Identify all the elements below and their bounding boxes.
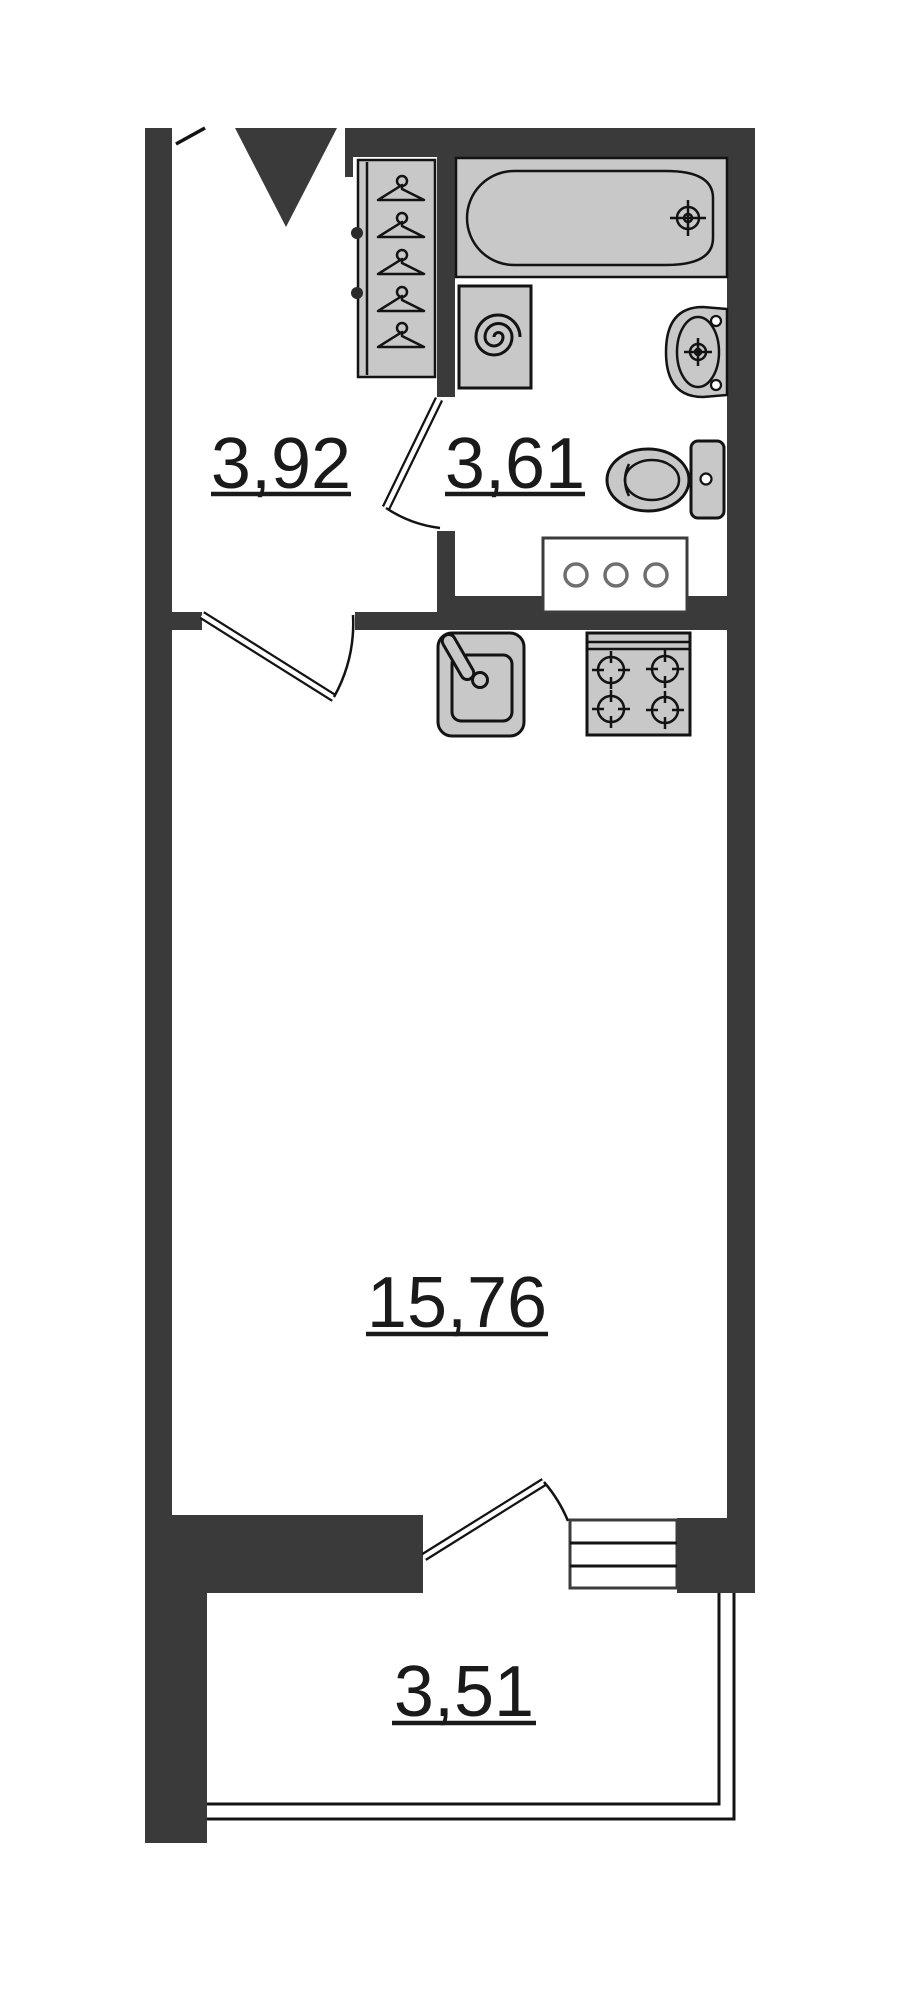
wall-divider-upper xyxy=(437,157,455,397)
vanity-counter-icon xyxy=(543,538,687,612)
wall-bottom-left xyxy=(145,1515,423,1593)
room-label-bathroom: 3,61 xyxy=(445,424,585,504)
wall-right xyxy=(727,128,755,1518)
wall-hall-stub-right xyxy=(355,612,437,630)
wardrobe-knob xyxy=(351,287,363,299)
living-room-area-value: 15,76 xyxy=(367,1263,547,1343)
living-room-door xyxy=(202,615,353,698)
wash-basin-icon xyxy=(666,307,727,397)
basin-screw xyxy=(711,316,721,326)
wardrobe-knob xyxy=(351,227,363,239)
bathroom-door-swing-icon xyxy=(386,508,440,528)
wall-corner-block xyxy=(677,1518,755,1593)
living-room-door-swing-icon xyxy=(334,615,353,697)
cooktop-icon xyxy=(587,633,690,735)
floor-plan: 3,92 3,61 15,76 3,51 xyxy=(0,0,900,1996)
room-label-hallway: 3,92 xyxy=(211,424,351,504)
balcony-door-swing-icon xyxy=(544,1482,568,1521)
wardrobe xyxy=(351,160,435,377)
toilet-icon xyxy=(607,441,724,518)
flush-button xyxy=(701,474,712,485)
wall-top-endcap xyxy=(345,156,353,177)
kitchen-sink-icon xyxy=(438,632,524,736)
wall-top xyxy=(345,128,755,157)
entrance-arrow-icon xyxy=(235,128,337,227)
balcony-door xyxy=(424,1482,568,1557)
balcony-window-icon xyxy=(570,1520,677,1588)
room-label-living-room: 15,76 xyxy=(366,1263,548,1343)
bathroom-door xyxy=(386,399,440,528)
washing-machine-icon xyxy=(459,286,531,388)
bathtub-icon xyxy=(456,158,727,277)
room-label-balcony: 3,51 xyxy=(392,1652,536,1732)
balcony-area-value: 3,51 xyxy=(394,1652,534,1732)
entrance-door-leaf-icon xyxy=(176,128,205,144)
wall-hall-stub-left xyxy=(172,612,202,630)
wall-left xyxy=(145,128,172,1515)
basin-screw xyxy=(711,380,721,390)
